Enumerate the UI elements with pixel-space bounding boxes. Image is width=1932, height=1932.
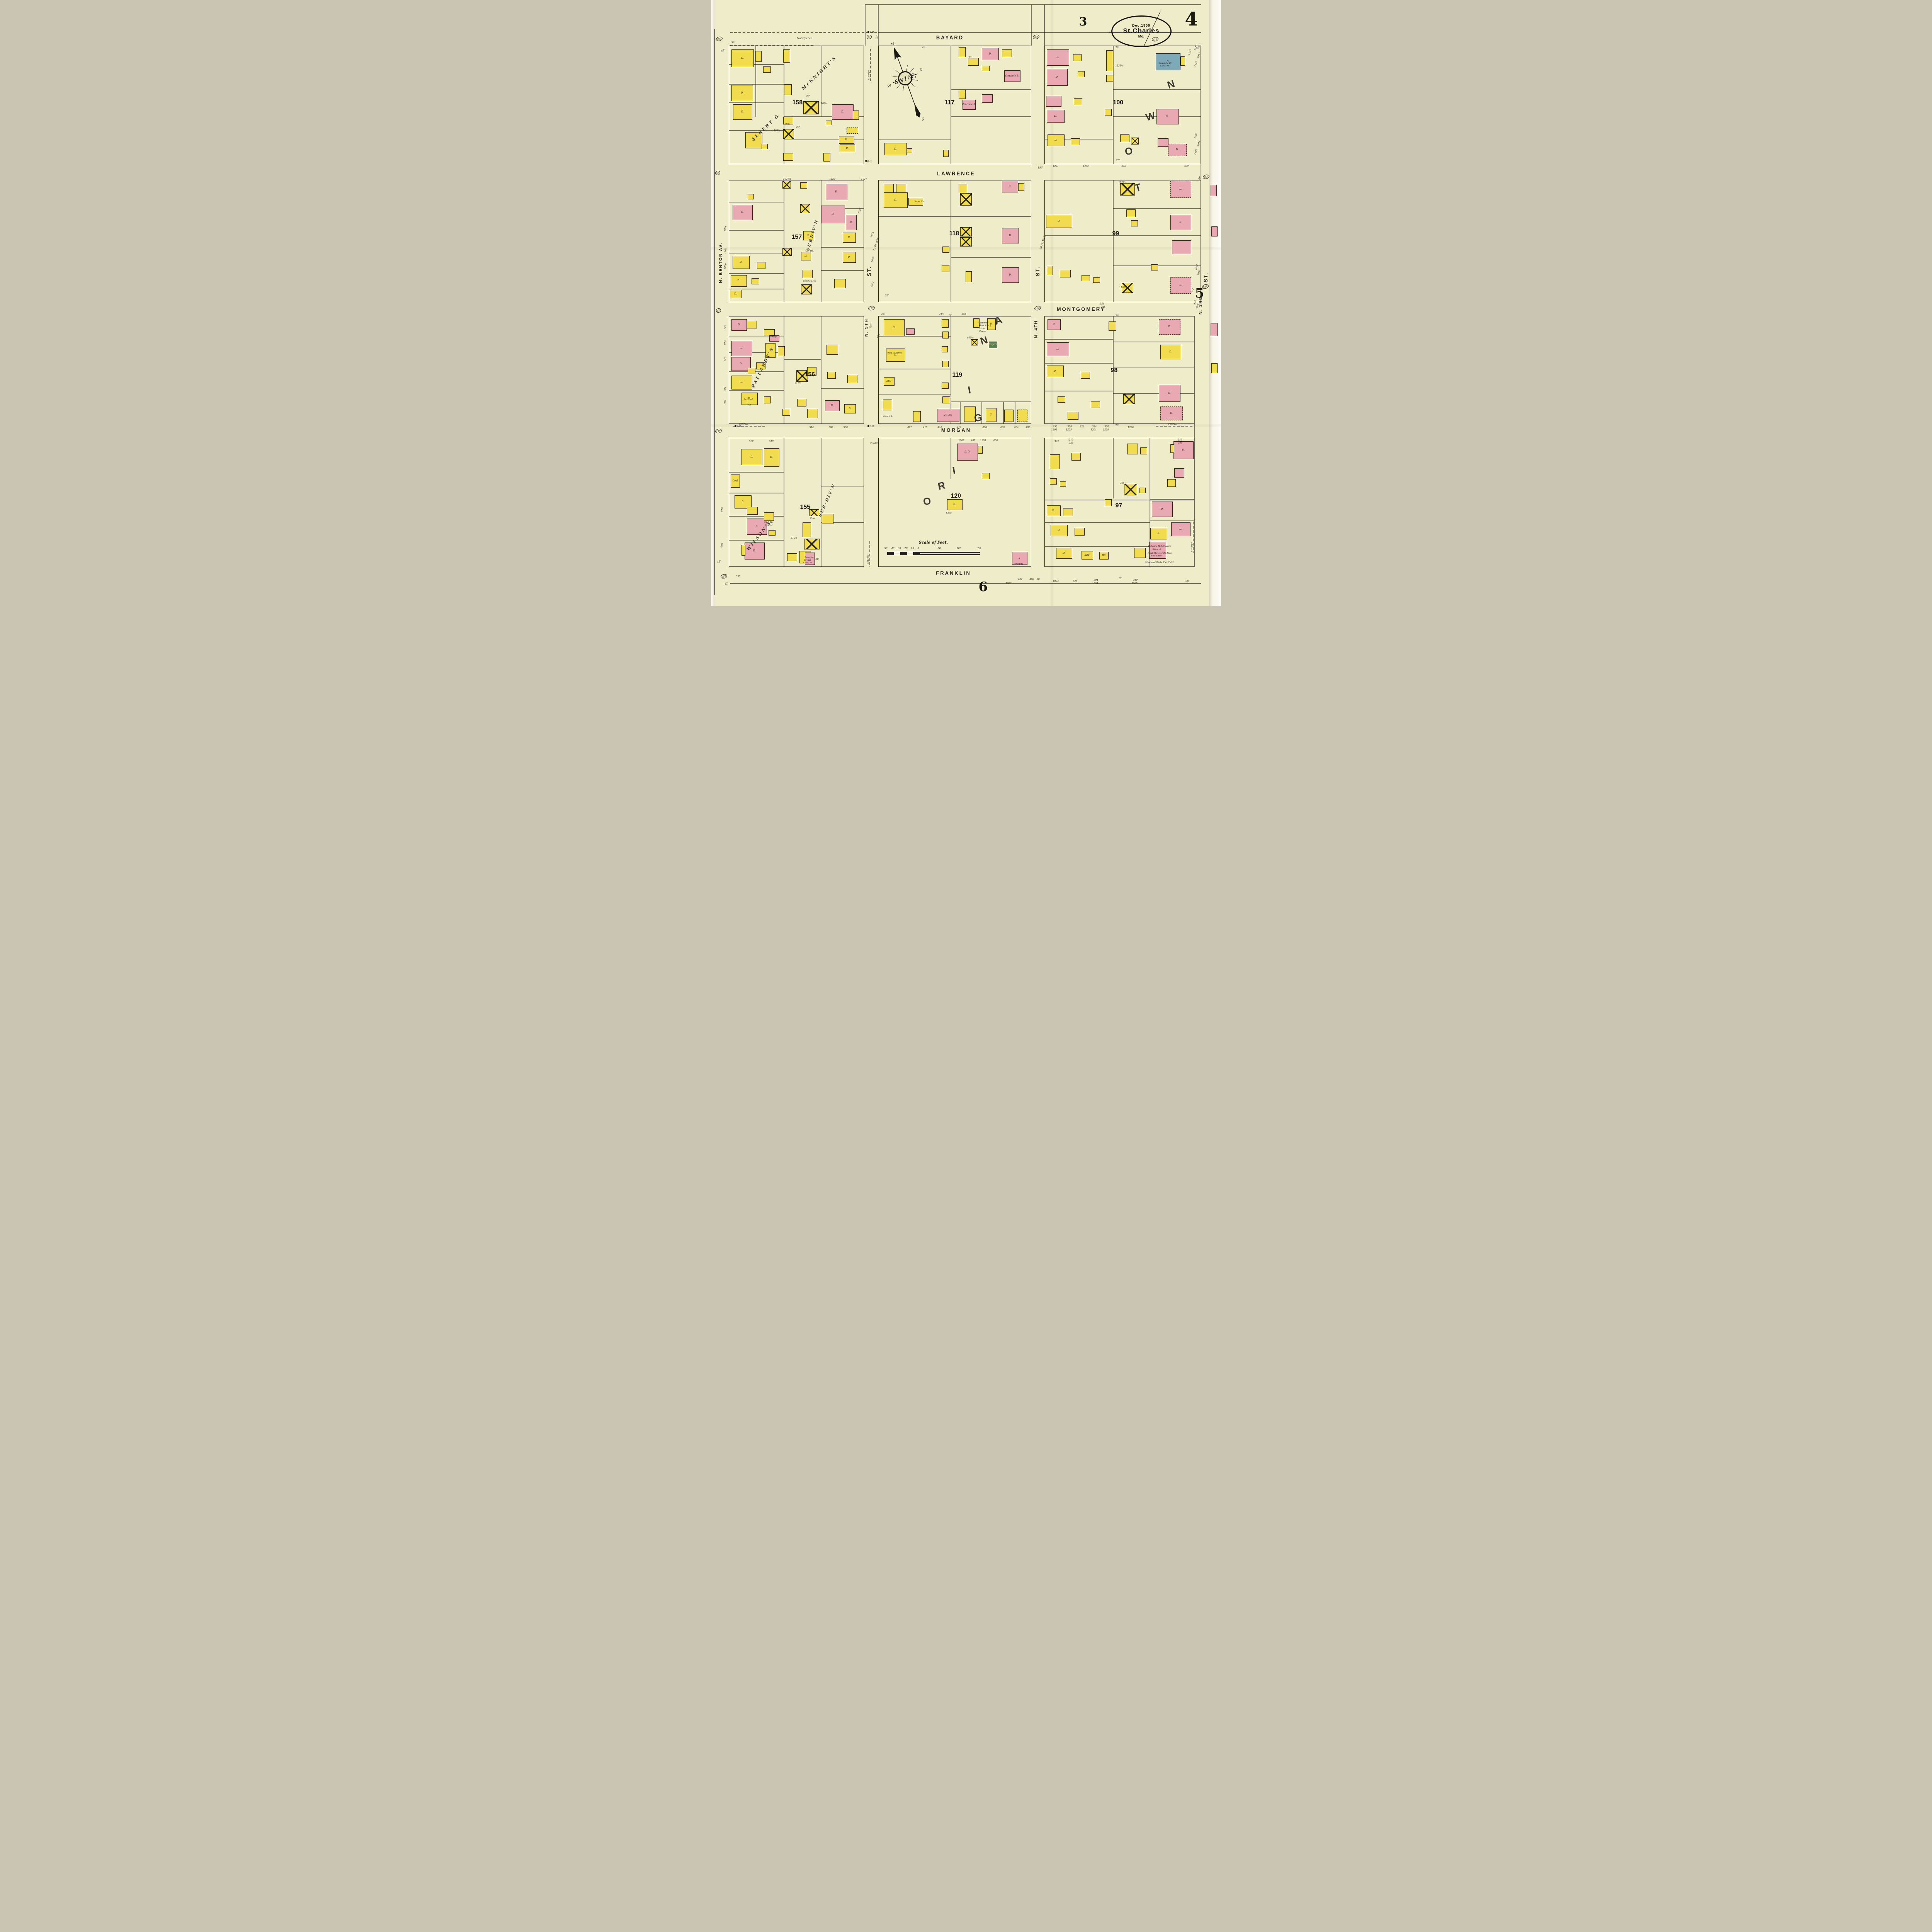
hydrant-label: D.H. <box>870 426 875 428</box>
building-label: D. <box>848 236 850 239</box>
street-name-montgomery: MONTGOMERY <box>1057 307 1105 312</box>
building-footprint: D. <box>1048 319 1061 330</box>
building-footprint: 2 <box>804 539 820 549</box>
compass-part <box>910 82 915 88</box>
building-footprint <box>1106 75 1113 82</box>
building-label: D. <box>894 199 897 202</box>
building-label: D. <box>893 327 895 329</box>
building-footprint <box>1058 396 1065 403</box>
building-footprint: D. <box>1160 345 1181 359</box>
map-annotation: Log <box>747 404 751 406</box>
building-footprint <box>942 383 949 389</box>
building-footprint: D. <box>1046 215 1072 228</box>
building-footprint <box>1131 138 1139 145</box>
map-annotation: 1206 <box>1128 427 1134 429</box>
building-footprint <box>784 84 792 95</box>
building-footprint <box>1106 50 1113 71</box>
hydrant-label: D.H. <box>870 32 875 34</box>
map-annotation: 52' <box>724 582 729 586</box>
map-annotation: 20' <box>816 558 820 561</box>
map-annotation: 1002 <box>724 248 728 254</box>
map-annotation: 900 <box>724 400 727 405</box>
hydrant-dot <box>865 160 867 162</box>
map-annotation: 904 <box>724 387 727 392</box>
map-annotation: 32' <box>875 35 879 40</box>
map-annotation: 418 <box>923 427 927 429</box>
building-label: D. <box>1056 348 1059 351</box>
building-label: D. <box>832 213 834 216</box>
map-annotation: 300 <box>1184 165 1189 168</box>
circled-distance: 103' <box>1032 34 1039 40</box>
block-number: 97 <box>1116 503 1122 509</box>
building-label: D. <box>1009 274 1012 277</box>
building-footprint <box>782 181 791 189</box>
map-annotation: 400 <box>1030 578 1034 581</box>
building-footprint: D. <box>826 184 847 200</box>
map-annotation: 910 <box>724 357 727 362</box>
building-footprint: D. <box>801 252 811 260</box>
map-annotation: St.Paul's M.E.Church <box>1148 546 1171 548</box>
building-footprint <box>747 321 757 328</box>
map-annotation: 22' <box>969 56 973 59</box>
map-annotation: 1101½ <box>1119 287 1128 289</box>
street-name-vertical: ST. <box>1035 266 1040 276</box>
building-footprint <box>800 204 810 213</box>
building-footprint: Concrete B. <box>1004 70 1020 82</box>
building-footprint: D. <box>1047 342 1069 356</box>
building-footprint <box>1071 453 1081 461</box>
building-footprint <box>942 265 949 272</box>
building-footprint <box>968 58 979 66</box>
map-annotation: Pilastered Walls 8"x12"x12' <box>1145 562 1175 564</box>
street-name-vertical: N. BENTON AV. <box>719 242 723 283</box>
map-annotation: 324 <box>1100 303 1104 305</box>
building-footprint: D. <box>1056 548 1072 559</box>
map-annotation: 1103½ <box>820 103 828 105</box>
building-footprint: D. <box>1156 109 1179 124</box>
map-annotation: 800 <box>721 543 724 548</box>
map-annotation: 1213 <box>1177 439 1182 441</box>
map-annotation: 1202 <box>1083 165 1089 168</box>
map-annotation: 431 <box>881 314 886 316</box>
building-footprint: D. <box>742 449 762 465</box>
building-footprint <box>803 270 813 278</box>
street-name-vertical: ST. <box>1203 272 1208 282</box>
building-footprint <box>782 248 792 256</box>
building-footprint <box>1002 49 1012 57</box>
building-footprint: D. <box>733 256 750 269</box>
map-annotation: 12' <box>1119 577 1122 580</box>
building-label: D. <box>740 381 743 384</box>
map-annotation: 350 <box>1053 426 1057 428</box>
building-footprint: D. <box>1002 181 1018 192</box>
building-footprint: D. <box>731 275 747 287</box>
circled-distance: 164' <box>1034 305 1041 311</box>
map-annotation: 305 <box>1178 442 1182 444</box>
map-annotation: 1208 <box>959 440 964 442</box>
map-title-oval: Dec.1909 St.Charles Mo. <box>1111 15 1172 47</box>
map-annotation: Wall to Eaves <box>888 352 902 355</box>
street-name-vertical: N. 5TH <box>864 319 869 337</box>
building-footprint <box>1017 410 1027 422</box>
building-footprint: D. <box>1170 181 1191 198</box>
map-annotation: 529 <box>749 440 753 443</box>
map-annotation: 20' <box>1116 159 1120 162</box>
plat-name-letter: O <box>922 495 931 507</box>
building-label: D. <box>742 501 744 503</box>
building-footprint: D. <box>1159 385 1180 402</box>
map-annotation: 1021½ <box>783 178 791 180</box>
map-annotation: Out Ho. <box>806 250 814 253</box>
map-annotation: 1102½ <box>772 130 781 132</box>
building-label: D. <box>741 92 743 95</box>
building-footprint: D. <box>884 192 908 208</box>
building-label: D. <box>846 147 849 150</box>
map-annotation: 916 <box>724 340 727 345</box>
building-footprint: Concrete B. <box>963 100 976 110</box>
building-footprint <box>748 368 755 374</box>
building-footprint <box>1139 488 1146 493</box>
sanborn-map-sheet: Dec.1909 St.Charles Mo. Scale of Feet. 5… <box>711 0 1221 606</box>
map-annotation: 402 <box>1018 578 1022 581</box>
building-footprint: D. <box>1152 502 1173 517</box>
map-annotation: 1209 <box>980 440 986 442</box>
map-annotation: 6"W.Pipe <box>1168 423 1178 426</box>
building-footprint: D. <box>1047 505 1061 516</box>
map-annotation: Const'rn. <box>1160 65 1170 68</box>
plat-name-letter: O <box>1124 145 1133 156</box>
map-annotation: 594 <box>1094 579 1098 582</box>
building-footprint: D. <box>1047 110 1065 123</box>
map-annotation: Br.Lined <box>744 399 753 401</box>
map-annotation: 912½ <box>795 383 801 385</box>
building-label: D. <box>1161 508 1163 511</box>
map-annotation: Concrete <box>979 322 989 325</box>
building-footprint: D. <box>731 341 752 356</box>
map-annotation: Not Opened <box>797 37 813 40</box>
building-footprint <box>1073 54 1082 61</box>
building-label: 2½ 2½ <box>944 414 952 417</box>
map-annotation: 1006 <box>724 225 728 231</box>
circled-distance: 55' <box>866 34 872 40</box>
building-footprint: D. <box>844 404 856 413</box>
building-footprint <box>823 153 830 162</box>
building-label: 2 <box>1130 488 1131 491</box>
map-annotation: 20' <box>1116 46 1119 49</box>
building-footprint: D. <box>730 290 742 298</box>
building-label: D. <box>1052 510 1055 512</box>
building-label: D. <box>845 139 848 141</box>
building-footprint: D. <box>884 319 905 336</box>
building-footprint <box>1211 226 1218 236</box>
adjacent-sheet-number: 4 <box>1185 10 1198 29</box>
compass-part <box>901 85 905 91</box>
building-footprint: D. <box>731 49 754 67</box>
map-annotation: 1202 <box>1051 429 1057 431</box>
building-label: D. <box>753 550 756 553</box>
street-name-franklin: FRANKLIN <box>936 571 971 576</box>
map-annotation: 1000 <box>724 263 728 269</box>
building-footprint: 2 <box>803 101 819 114</box>
map-annotation: 156' <box>1038 167 1043 169</box>
building-footprint <box>1060 481 1066 487</box>
map-annotation: Laundry <box>768 336 777 338</box>
map-annotation: Tenem'ts <box>1014 563 1023 566</box>
map-annotation: 922 <box>724 325 727 330</box>
building-label: D. <box>1053 323 1055 326</box>
building-label: D. <box>1179 284 1182 287</box>
map-annotation: 310 <box>1122 165 1126 168</box>
block-number: 117 <box>945 100 955 106</box>
building-label: D. <box>1179 221 1182 224</box>
building-footprint: D. <box>731 319 747 331</box>
building-footprint <box>942 361 949 367</box>
map-annotation: 500 <box>844 427 848 429</box>
building-footprint <box>942 319 949 328</box>
building-footprint: 2 <box>1124 484 1137 495</box>
map-annotation: 1123½ <box>1116 65 1124 67</box>
building-footprint <box>942 396 950 403</box>
building-footprint <box>764 512 774 521</box>
map-annotation: 20' <box>1116 424 1119 427</box>
block-number: 120 <box>951 493 961 499</box>
map-annotation: 1204 <box>1091 429 1097 431</box>
building-footprint <box>847 375 857 383</box>
building-label: D. <box>734 293 737 296</box>
circled-distance: 182' <box>720 573 727 579</box>
building-label: 2 <box>990 414 992 417</box>
building-footprint <box>906 328 915 335</box>
building-label: D. <box>807 235 810 237</box>
building-footprint <box>764 329 775 335</box>
map-annotation: 324 <box>1092 426 1097 428</box>
map-annotation: Heat:Stove-Light:Elec. <box>1148 553 1172 555</box>
building-label: D. <box>1157 532 1160 535</box>
building-footprint <box>853 111 859 120</box>
block-number: 156 <box>805 372 815 378</box>
map-annotation: 300 <box>1185 580 1189 583</box>
map-annotation: 1205 <box>1103 429 1109 431</box>
map-annotation: 326 <box>1080 426 1084 428</box>
map-annotation: 408 <box>983 427 987 429</box>
block-number: 157 <box>792 234 802 240</box>
building-footprint <box>942 346 948 352</box>
building-label: 2 <box>1127 188 1128 191</box>
adjacent-sheet-number: 3 <box>1079 16 1087 28</box>
building-footprint <box>959 184 967 193</box>
building-footprint <box>778 346 785 356</box>
building-footprint: D. <box>1048 134 1065 146</box>
building-label: D. <box>755 526 758 528</box>
building-footprint: D. <box>1047 49 1069 66</box>
building-label: D. <box>738 324 740 327</box>
circled-distance: 199' <box>715 36 723 42</box>
building-footprint <box>1172 240 1191 254</box>
street-name-vertical: ST. <box>866 266 872 276</box>
map-annotation: G.W.Pipe <box>739 423 749 426</box>
building-footprint <box>783 49 790 63</box>
building-footprint: D. <box>1150 528 1167 539</box>
building-footprint <box>1078 71 1085 77</box>
map-annotation: 40' <box>721 49 725 53</box>
building-footprint: 2 <box>783 129 794 139</box>
map-annotation: 305½ <box>1120 482 1127 485</box>
building-label: Concrete B. <box>962 104 976 106</box>
building-footprint <box>801 284 812 294</box>
building-footprint <box>1140 447 1147 454</box>
building-label: D. <box>741 111 744 114</box>
building-footprint <box>943 150 949 157</box>
building-footprint <box>883 400 892 410</box>
compass-part: N <box>890 42 896 48</box>
building-footprint: 2½ 2½ <box>937 409 959 422</box>
building-footprint: Carp'r.2 <box>989 342 997 348</box>
block-number: 99 <box>1112 231 1119 237</box>
map-annotation: 38' <box>1037 578 1041 581</box>
building-label: D. <box>1182 449 1185 452</box>
map-annotation: 1015 <box>871 231 874 238</box>
hydrant-dot <box>867 31 869 33</box>
map-annotation: Cow. <box>810 518 815 520</box>
building-label: D. <box>1058 220 1060 223</box>
map-annotation: 1009 <box>871 256 875 262</box>
building-footprint <box>1180 56 1185 66</box>
building-footprint <box>1018 183 1024 191</box>
building-footprint: Coal <box>731 474 740 488</box>
compass-part: W <box>887 84 892 89</box>
building-footprint <box>1134 548 1146 558</box>
building-label: D. <box>1056 76 1058 79</box>
map-annotation: 422 <box>908 427 912 429</box>
building-footprint: D. <box>733 104 752 120</box>
building-footprint: D. <box>821 206 845 223</box>
building-label: D. <box>841 111 844 114</box>
map-annotation: 1005 <box>1132 583 1138 585</box>
building-label: BB <box>1102 554 1105 557</box>
building-footprint: 2 <box>1120 183 1135 196</box>
map-annotation: 406 <box>1000 427 1005 429</box>
building-footprint <box>800 182 807 189</box>
building-footprint <box>960 237 972 247</box>
building-footprint <box>959 47 966 57</box>
building-label: Coal <box>733 480 738 483</box>
building-footprint <box>783 153 793 161</box>
building-label: 2 <box>810 107 812 109</box>
map-annotation: 328 <box>1068 426 1072 428</box>
building-footprint <box>769 530 776 536</box>
building-footprint: 2 <box>971 339 978 345</box>
building-footprint: 2BB <box>884 377 895 386</box>
compass-part <box>907 85 909 91</box>
building-footprint <box>1151 264 1158 270</box>
building-footprint <box>1046 96 1061 107</box>
map-annotation: 1210 <box>1068 439 1073 441</box>
map-annotation: 1002 <box>1006 583 1012 585</box>
building-footprint: BB <box>1099 552 1109 560</box>
building-label: D. <box>1063 552 1065 555</box>
building-label: D. <box>741 211 744 214</box>
building-label: D. <box>740 363 742 366</box>
map-annotation: 1003 <box>1099 306 1105 308</box>
building-footprint <box>942 247 949 253</box>
map-annotation: 1203 <box>1066 429 1072 431</box>
map-annotation: 531 <box>731 42 736 44</box>
building-footprint <box>1127 444 1138 454</box>
map-annotation: Power <box>980 331 986 333</box>
map-annotation: 1027 <box>861 178 867 180</box>
map-annotation: Gasol'ne <box>803 562 813 565</box>
building-footprint <box>1211 185 1217 196</box>
building-footprint: D. <box>1160 406 1183 420</box>
building-label: D. <box>1054 370 1056 373</box>
building-footprint <box>907 148 912 153</box>
building-label: D. <box>1179 528 1182 531</box>
building-footprint: D. <box>1159 319 1180 335</box>
map-annotation: 409 <box>962 314 966 316</box>
building-label: 2 <box>788 133 789 136</box>
building-footprint: D. <box>832 104 854 120</box>
building-footprint <box>757 262 765 269</box>
building-footprint <box>1167 479 1176 487</box>
building-label: D. <box>1168 326 1171 328</box>
map-annotation: 414 <box>957 427 961 429</box>
building-footprint: D. <box>733 205 753 220</box>
building-label: Concrete B. <box>1005 75 1019 78</box>
building-footprint <box>959 90 966 99</box>
map-annotation: Vacant S. <box>883 416 893 418</box>
map-annotation: 415 <box>939 314 944 316</box>
building-footprint <box>1047 266 1053 275</box>
building-footprint: 2BB <box>1082 551 1093 560</box>
block-number: 155 <box>800 504 811 510</box>
building-footprint: D. <box>825 400 840 411</box>
compass-part <box>912 102 922 118</box>
building-label: D. <box>740 261 742 264</box>
building-footprint: D. <box>735 495 752 509</box>
building-label: 2 <box>974 341 975 344</box>
building-footprint: D. <box>843 252 856 263</box>
building-footprint <box>747 507 758 515</box>
building-footprint <box>827 372 836 379</box>
building-label: D. <box>1056 56 1059 59</box>
building-footprint: D. <box>1170 277 1191 294</box>
title-strike-line <box>1109 32 1171 32</box>
building-label: D. <box>849 408 851 410</box>
map-annotation: 407 <box>971 440 975 442</box>
building-footprint <box>1131 220 1138 226</box>
compass-part <box>895 69 900 75</box>
map-annotation: 20' <box>1116 315 1119 317</box>
building-label: 2BB <box>886 380 891 383</box>
building-label: 2 <box>811 543 813 546</box>
building-footprint <box>1050 454 1060 469</box>
map-annotation: G.W.Pipe <box>868 70 871 80</box>
map-annotation: 6"W.Pipe <box>1191 542 1194 552</box>
building-footprint <box>1211 323 1218 336</box>
map-annotation: 810½ <box>791 537 798 539</box>
building-footprint: D. <box>1047 69 1068 86</box>
map-annotation: 923 <box>869 323 873 328</box>
map-annotation: 402 <box>1026 427 1030 429</box>
map-annotation: 810 <box>721 507 724 512</box>
map-annotation: 310 <box>1133 579 1138 582</box>
building-footprint <box>1074 98 1082 105</box>
building-label: D. <box>1179 188 1182 191</box>
compass-part <box>900 66 902 72</box>
map-annotation: 409½ <box>967 337 974 339</box>
street-name-bayard: BAYARD <box>936 35 964 40</box>
map-annotation: 1201 <box>1053 165 1059 168</box>
